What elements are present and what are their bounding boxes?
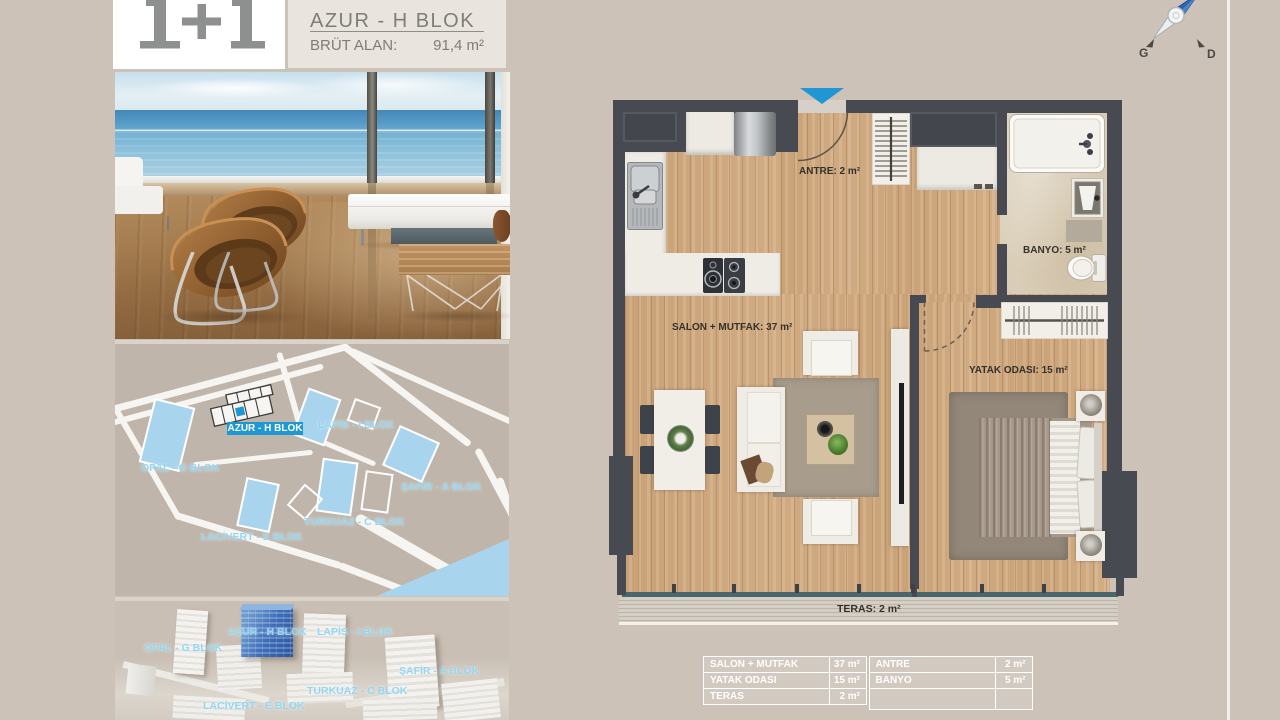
svg-text:D: D: [1207, 47, 1216, 61]
svg-text:G: G: [1139, 46, 1148, 60]
